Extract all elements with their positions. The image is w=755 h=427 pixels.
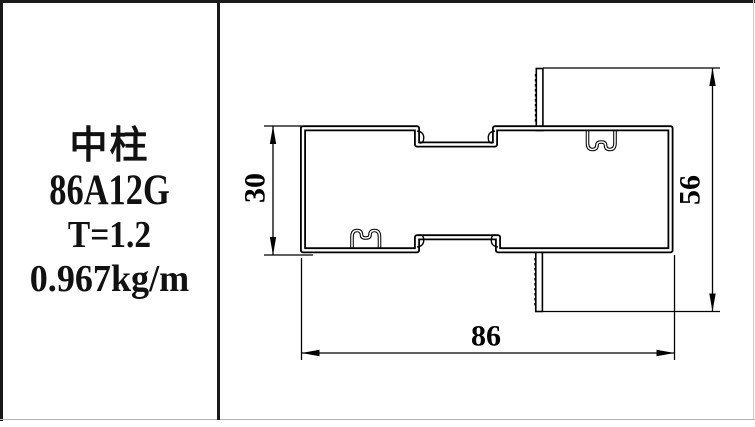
screw-boss-bottom [352, 231, 380, 249]
screw-boss-top [588, 130, 616, 150]
top-fin [535, 69, 542, 131]
channel-lips [417, 131, 498, 247]
dim-86-label: 86 [471, 320, 501, 353]
dim-56-label: 56 [674, 175, 707, 205]
dimension-86: 86 [302, 255, 675, 360]
profile-cross-section-drawing: 30 56 86 [0, 0, 755, 427]
dim-30-label: 30 [239, 173, 272, 203]
dimension-56: 56 [543, 68, 720, 312]
drawing-sheet: 中柱 86A12G T=1.2 0.967kg/m [0, 0, 755, 427]
bottom-fin [535, 249, 542, 312]
